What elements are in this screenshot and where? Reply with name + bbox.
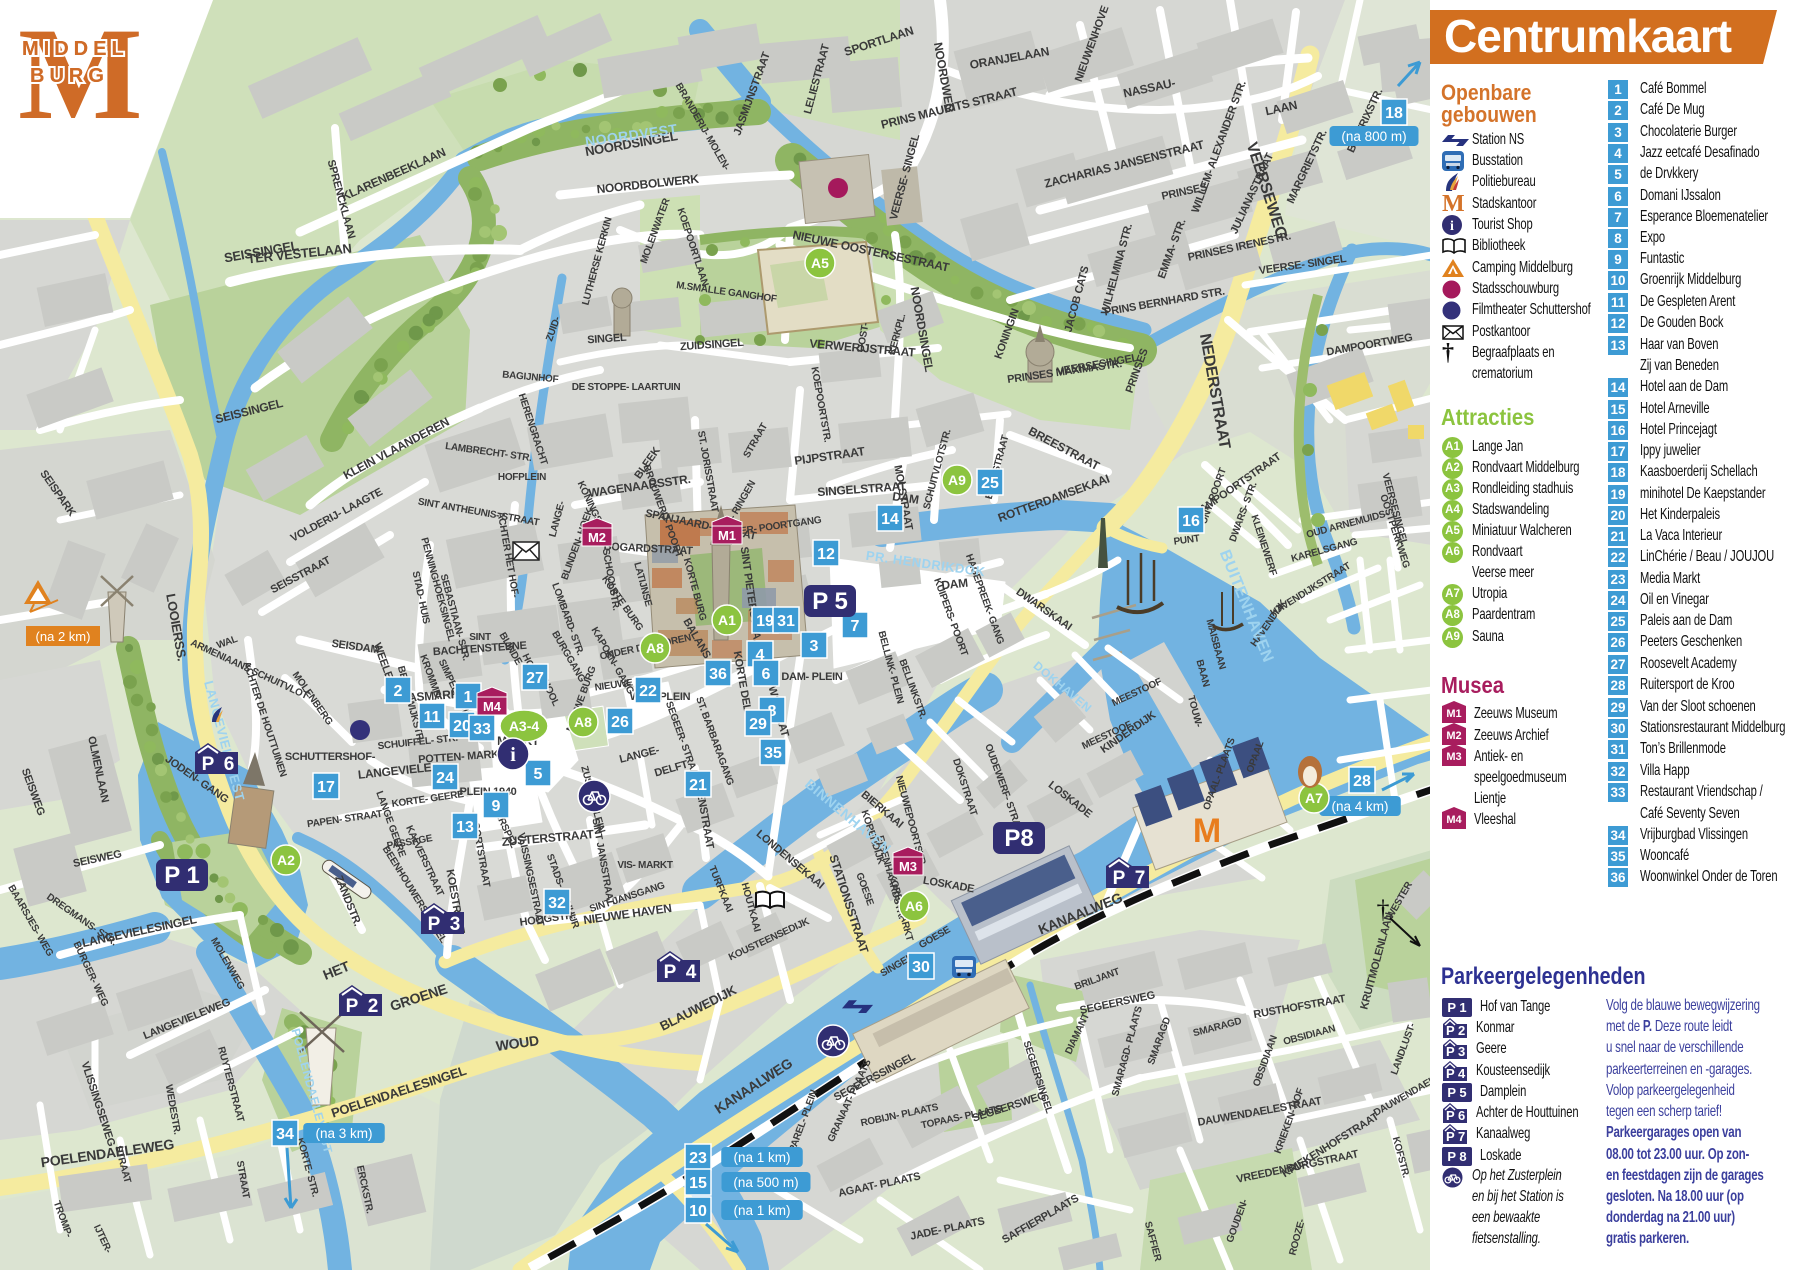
- svg-text:A8: A8: [574, 714, 592, 730]
- svg-text:A7: A7: [1305, 790, 1323, 806]
- svg-text:26: 26: [611, 714, 629, 731]
- svg-text:M: M: [1193, 812, 1221, 850]
- svg-text:25: 25: [981, 475, 999, 492]
- svg-text:36: 36: [709, 666, 727, 683]
- svg-text:P: P: [664, 962, 677, 983]
- svg-text:9: 9: [492, 798, 501, 815]
- svg-text:A2: A2: [277, 852, 295, 868]
- svg-text:12: 12: [817, 546, 835, 563]
- svg-text:34: 34: [276, 1126, 294, 1143]
- svg-text:P: P: [202, 754, 215, 775]
- svg-text:(na 500 m): (na 500 m): [733, 1175, 798, 1190]
- svg-text:27: 27: [526, 670, 544, 687]
- svg-text:P: P: [428, 914, 441, 935]
- svg-text:M2: M2: [588, 530, 606, 545]
- svg-text:P: P: [346, 996, 359, 1017]
- svg-text:P: P: [1446, 1023, 1455, 1038]
- svg-text:MIDDEL: MIDDEL: [22, 38, 129, 60]
- svg-text:DE STOPPE- LAARTUIN: DE STOPPE- LAARTUIN: [572, 382, 681, 393]
- svg-text:DAM: DAM: [941, 576, 969, 593]
- svg-text:(na 4 km): (na 4 km): [1331, 799, 1388, 814]
- svg-text:A1: A1: [718, 612, 736, 628]
- svg-text:†: †: [1377, 895, 1390, 924]
- svg-text:1: 1: [464, 689, 473, 706]
- svg-text:Centrumkaart: Centrumkaart: [1444, 10, 1732, 62]
- svg-text:(na 800 m): (na 800 m): [1341, 129, 1406, 144]
- svg-text:A9: A9: [948, 472, 966, 488]
- svg-text:P: P: [1446, 1044, 1455, 1059]
- svg-text:21: 21: [689, 777, 707, 794]
- svg-text:P: P: [1113, 868, 1126, 889]
- svg-text:A6: A6: [905, 898, 923, 914]
- svg-text:23: 23: [689, 1150, 707, 1167]
- svg-text:SINT: SINT: [469, 632, 491, 643]
- svg-text:18: 18: [1385, 105, 1403, 122]
- svg-text:(na 2 km): (na 2 km): [36, 629, 91, 644]
- svg-text:P: P: [1446, 1066, 1455, 1081]
- svg-text:28: 28: [1353, 773, 1371, 790]
- svg-text:4: 4: [686, 962, 697, 983]
- svg-text:BURG: BURG: [30, 65, 109, 87]
- svg-text:i: i: [1450, 219, 1454, 234]
- svg-text:33: 33: [473, 721, 491, 738]
- svg-text:30: 30: [912, 959, 930, 976]
- svg-text:32: 32: [548, 895, 566, 912]
- svg-text:SCHUTTERSHOF-: SCHUTTERSHOF-: [285, 751, 376, 763]
- svg-text:7: 7: [1458, 1129, 1465, 1144]
- svg-text:P: P: [1446, 1108, 1455, 1123]
- svg-text:6: 6: [224, 754, 235, 775]
- svg-text:3: 3: [810, 638, 819, 655]
- svg-text:M3: M3: [899, 859, 917, 874]
- svg-text:2: 2: [394, 683, 403, 700]
- svg-text:A8: A8: [646, 640, 664, 656]
- svg-text:22: 22: [639, 683, 657, 700]
- svg-text:29: 29: [749, 716, 767, 733]
- svg-text:6: 6: [1458, 1108, 1465, 1123]
- svg-text:7: 7: [851, 618, 860, 635]
- svg-text:35: 35: [764, 745, 782, 762]
- svg-text:16: 16: [1182, 513, 1200, 530]
- svg-text:4: 4: [1458, 1066, 1466, 1081]
- svg-text:DAM- PLEIN: DAM- PLEIN: [781, 671, 843, 683]
- svg-text:A5: A5: [811, 255, 829, 271]
- svg-text:(na 1 km): (na 1 km): [733, 1203, 790, 1218]
- svg-text:7: 7: [1135, 868, 1146, 889]
- svg-text:HOFPLEIN: HOFPLEIN: [498, 472, 546, 483]
- svg-text:P: P: [1446, 1129, 1455, 1144]
- svg-text:2: 2: [1458, 1023, 1465, 1038]
- svg-text:VIS- MARKT: VIS- MARKT: [617, 860, 673, 871]
- svg-text:10: 10: [689, 1203, 707, 1220]
- svg-text:M1: M1: [718, 528, 736, 543]
- svg-text:15: 15: [689, 1175, 707, 1192]
- svg-text:A3-4: A3-4: [509, 718, 540, 734]
- svg-text:11: 11: [424, 709, 441, 726]
- svg-text:14: 14: [881, 511, 899, 528]
- svg-text:2: 2: [368, 996, 379, 1017]
- svg-text:P 5: P 5: [812, 588, 848, 615]
- svg-text:3: 3: [1458, 1044, 1465, 1059]
- svg-text:P 1: P 1: [164, 862, 200, 889]
- svg-text:31: 31: [777, 613, 795, 630]
- svg-text:M4: M4: [483, 699, 502, 714]
- svg-text:3: 3: [450, 914, 461, 935]
- svg-text:19: 19: [756, 613, 774, 630]
- svg-text:P8: P8: [1004, 825, 1033, 852]
- svg-text:24: 24: [436, 770, 454, 787]
- svg-text:(na 1 km): (na 1 km): [733, 1150, 790, 1165]
- svg-text:13: 13: [456, 819, 474, 836]
- svg-text:5: 5: [534, 766, 543, 783]
- svg-text:17: 17: [317, 779, 335, 796]
- svg-text:6: 6: [762, 666, 771, 683]
- svg-text:(na 3 km): (na 3 km): [315, 1126, 372, 1141]
- svg-text:i: i: [510, 744, 516, 766]
